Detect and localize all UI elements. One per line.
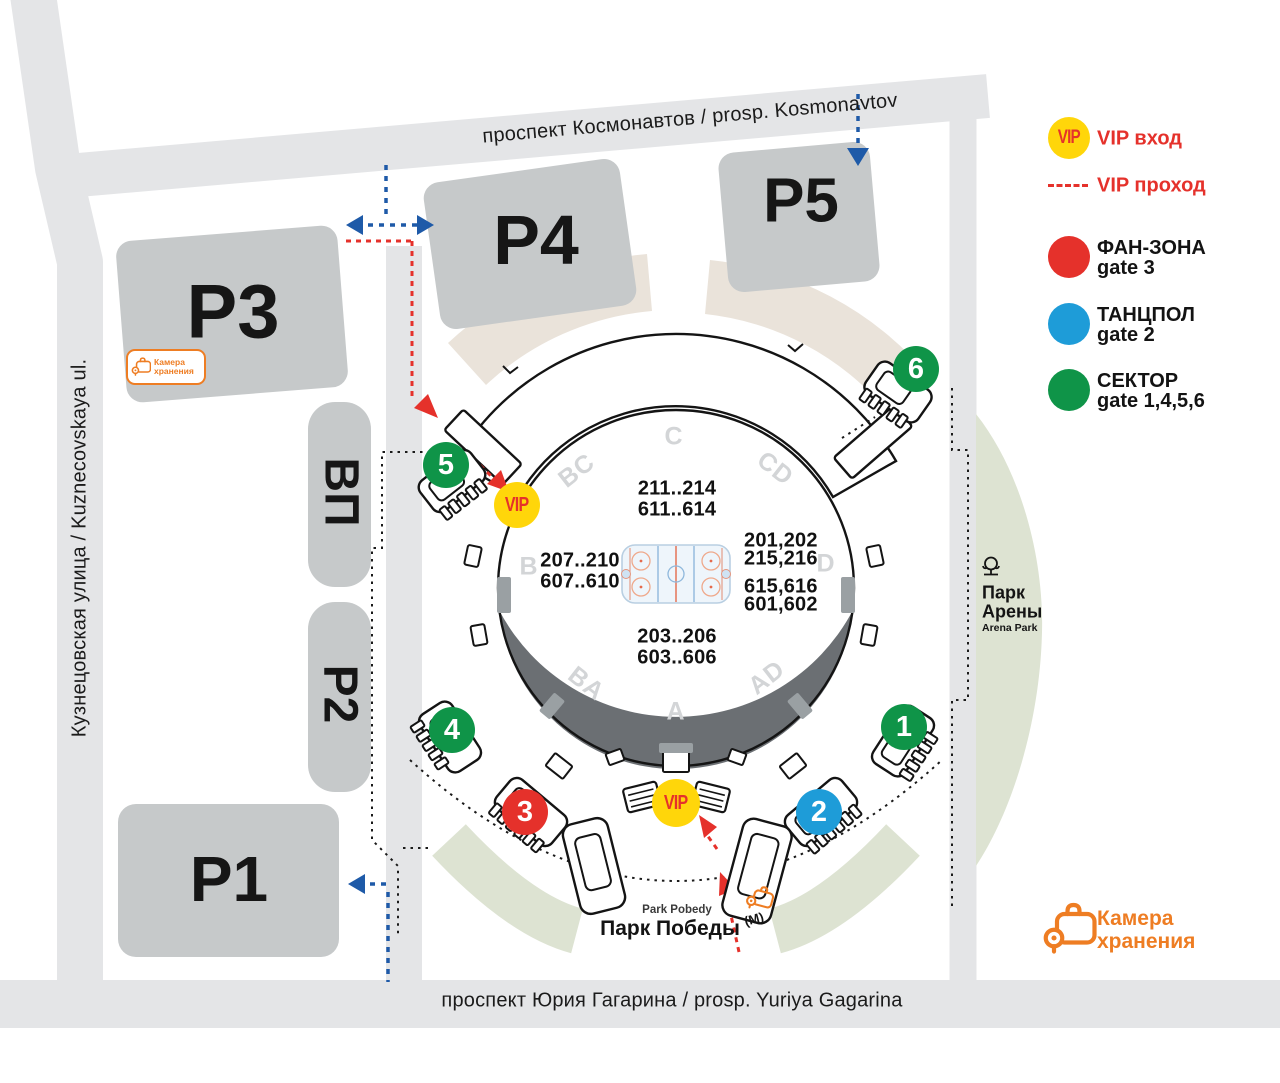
parking-p4-label: Р4: [493, 200, 579, 280]
metro-label: Парк Победы: [600, 917, 740, 941]
seats-bottom-2: 603..606: [637, 647, 716, 670]
legend-dancefloor: ТАНЦПОЛ gate 2: [1097, 305, 1195, 345]
luggage-icon-main: [1046, 905, 1095, 952]
gate-4-badge: 4: [429, 707, 475, 753]
seats-left-2: 607..610: [540, 571, 619, 594]
parking-p2-label: Р2: [313, 665, 368, 724]
luggage-icon-p3: [131, 356, 151, 378]
arena-park-label-2: Арены: [982, 602, 1042, 623]
section-b: B: [519, 553, 538, 582]
gate-5-badge: 5: [423, 442, 469, 488]
arena-park-label-latin: Arena Park: [982, 622, 1037, 634]
parking-vp-label: ВП: [314, 457, 369, 526]
luggage-label-2: хранения: [1097, 930, 1195, 954]
legend-vip-pass-dash: [1048, 184, 1088, 187]
vip-entrance-left-badge: VIP: [494, 482, 540, 528]
legend-vip-badge: VIP: [1048, 117, 1090, 159]
tree-icon: [979, 555, 1003, 586]
metro-pavilion-left: [561, 816, 628, 916]
legend-vip-pass-label: VIP проход: [1097, 175, 1206, 198]
section-c: C: [664, 423, 683, 452]
parking-p1-label: Р1: [190, 842, 268, 916]
ice-rink: [622, 545, 731, 603]
luggage-badge-p3: Камера хранения: [126, 349, 206, 385]
gate-2-badge: 2: [796, 789, 842, 835]
gate-1-badge: 1: [881, 704, 927, 750]
legend-sector: СЕКТОР gate 1,4,5,6: [1097, 371, 1205, 411]
luggage-label-1: Камера: [1097, 907, 1173, 931]
legend-vip-entrance-label: VIP вход: [1097, 128, 1182, 151]
seats-right-2: 215,216: [744, 548, 818, 571]
gate-3-badge: 3: [502, 789, 548, 835]
legend-dancefloor-dot: [1048, 303, 1090, 345]
seats-bottom-1: 203..206: [637, 626, 716, 649]
venue-access-map: проспект Космонавтов / prosp. Kosmonavto…: [0, 0, 1280, 1083]
arena-park-label-1: Парк: [982, 583, 1025, 604]
parking-p3-label: Р3: [187, 269, 280, 356]
street-inner-road: [386, 246, 422, 988]
legend-sector-dot: [1048, 369, 1090, 411]
seats-left-1: 207..210: [540, 550, 619, 573]
arena-park-area: [976, 414, 1042, 866]
section-d: D: [816, 550, 835, 579]
seats-top-2: 611..614: [638, 499, 716, 522]
metro-label-latin: Park Pobedy: [642, 904, 712, 916]
green-band-left: [449, 840, 577, 931]
street-label-kuznecovskaya: Кузнецовская улица / Kuznecovskaya ul.: [69, 359, 92, 737]
gate-6-badge: 6: [893, 346, 939, 392]
green-band-right: [775, 840, 903, 931]
seats-right-4: 601,602: [744, 594, 818, 617]
legend-fan-zone: ФАН-ЗОНА gate 3: [1097, 238, 1206, 278]
legend-fan-zone-dot: [1048, 236, 1090, 278]
vip-entrance-bottom-badge: VIP: [652, 779, 700, 827]
seats-top-1: 211..214: [638, 478, 716, 501]
street-label-gagarina: проспект Юрия Гагарина / prosp. Yuriya G…: [441, 990, 902, 1013]
section-a: A: [666, 698, 685, 727]
parking-p5-label: Р5: [763, 166, 839, 237]
